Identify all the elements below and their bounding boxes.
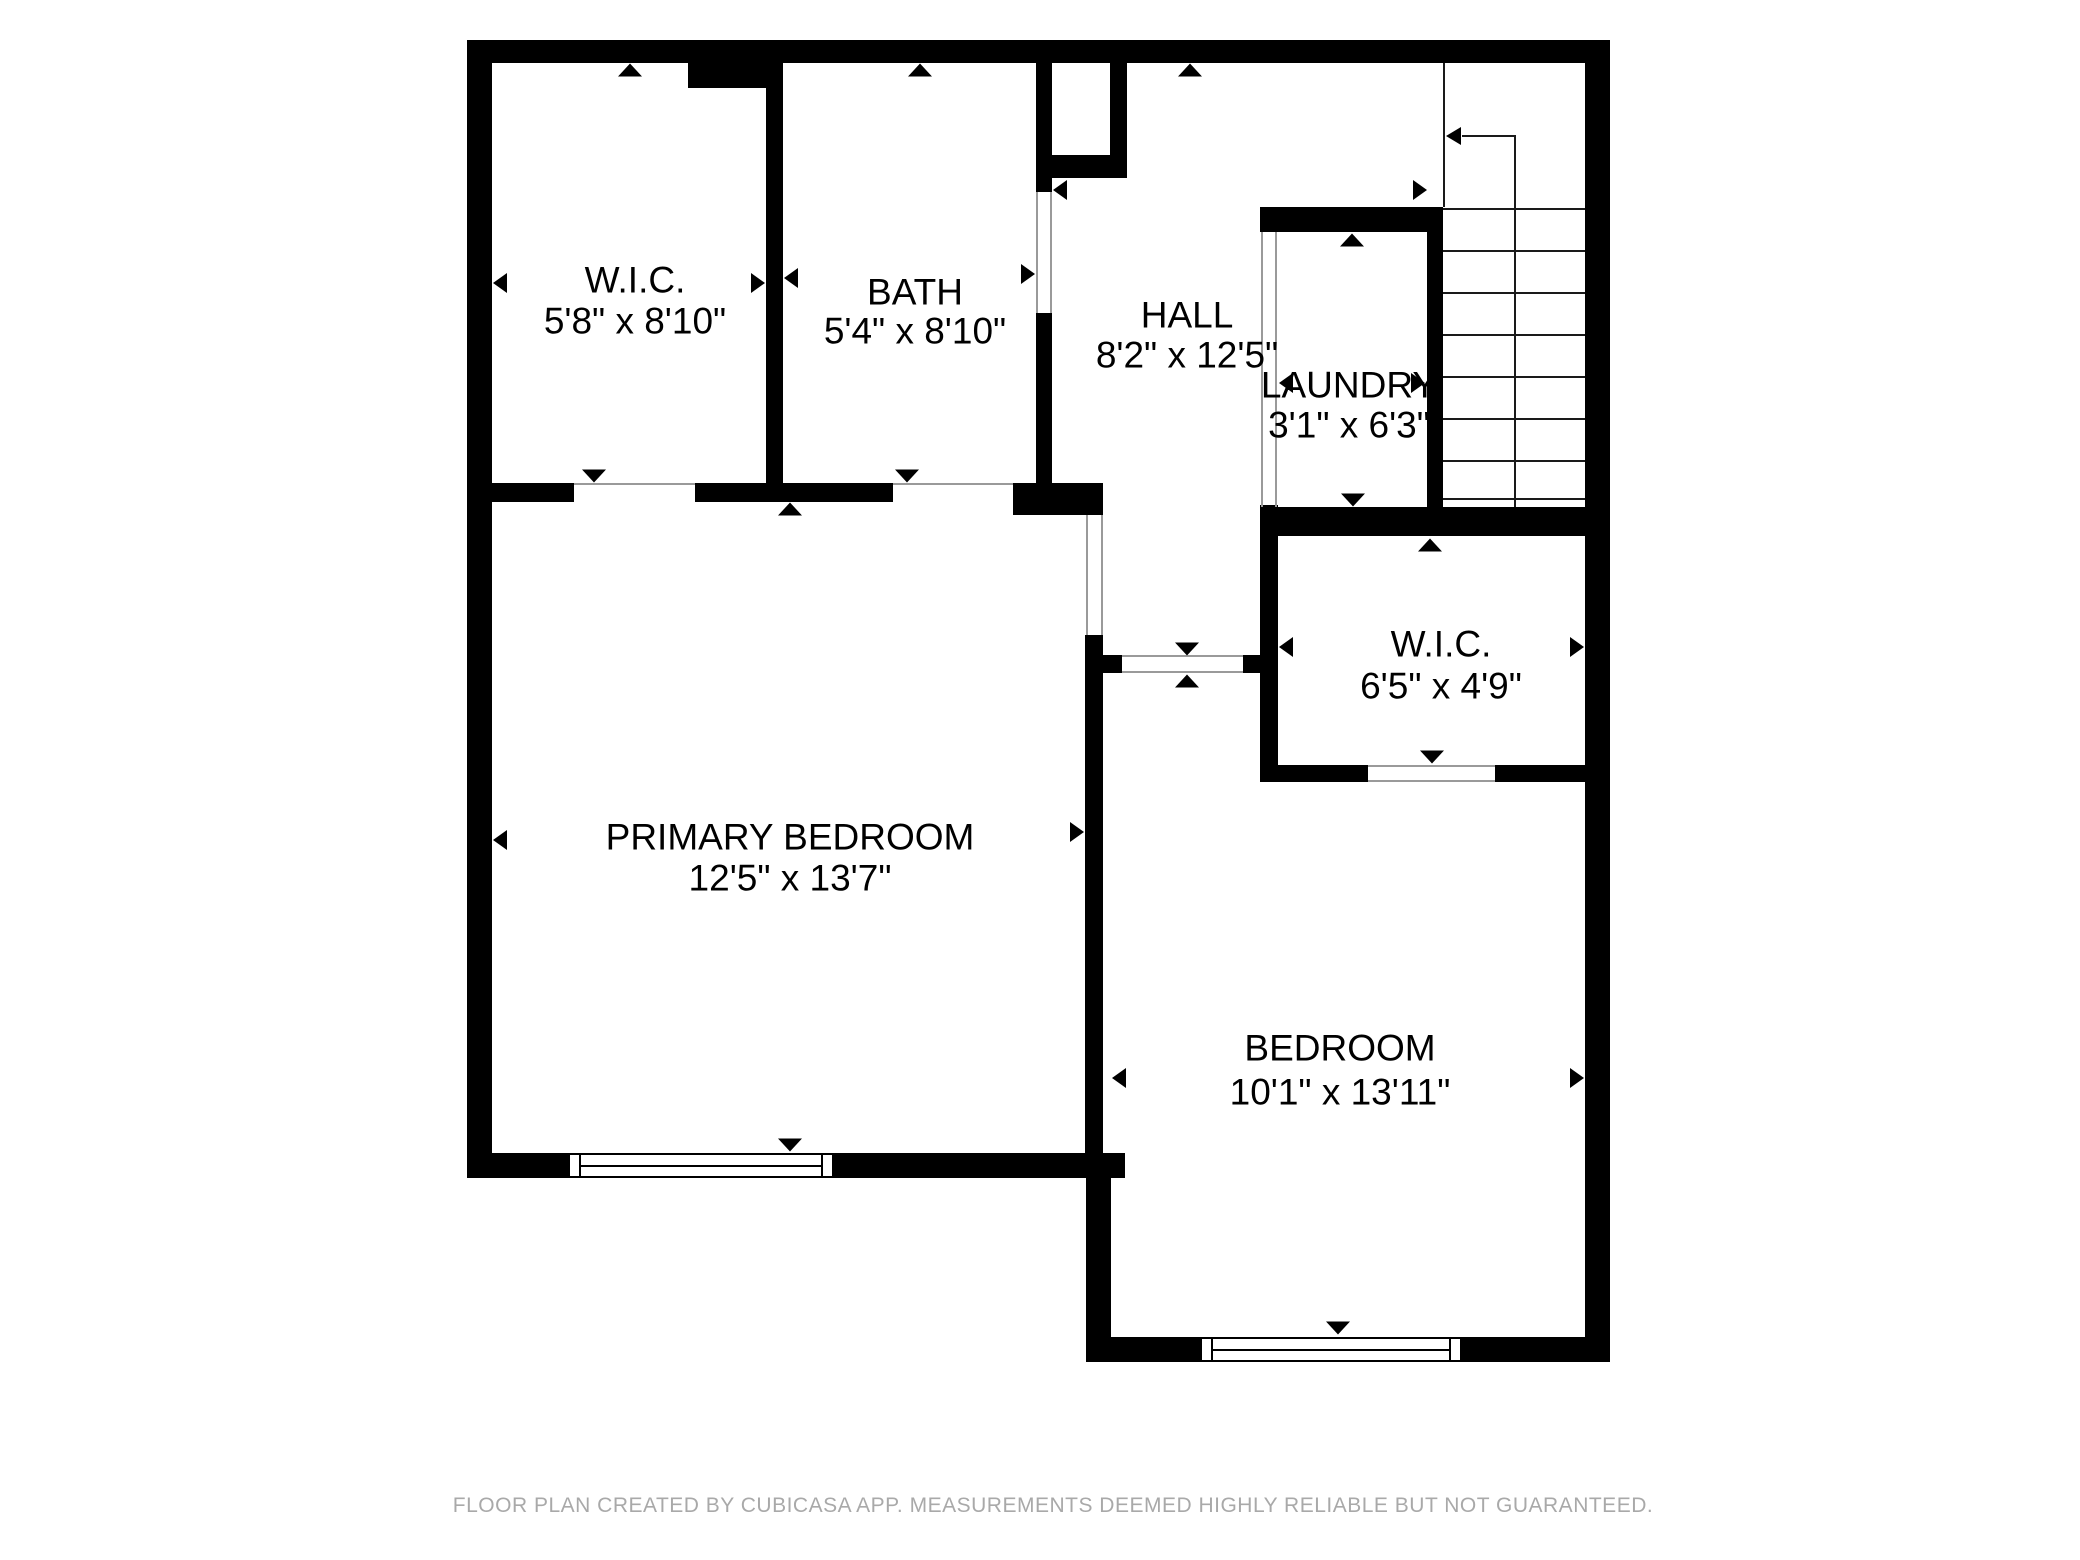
dimension-arrow-up-hall xyxy=(1178,64,1202,77)
dimension-arrow-left-wic-upper xyxy=(493,273,507,293)
dimension-arrow-down-wic-upper xyxy=(582,470,606,483)
room-dimensions-laundry: 3'1" x 6'3" xyxy=(1268,407,1430,444)
dimension-arrow-left-wic-lower xyxy=(1279,637,1293,657)
wall-wic-bottom xyxy=(492,483,574,502)
wall-primary-bottom-right xyxy=(834,1153,1125,1178)
wall-primary-bedroom-divider xyxy=(1085,635,1103,1178)
wall-wic-bath-divider xyxy=(766,63,783,483)
dimension-arrow-down-wic-lower xyxy=(1420,751,1444,764)
dimension-arrow-up-bedroom xyxy=(1175,675,1199,688)
opening-line-wic-door xyxy=(574,483,695,485)
wall-bath-bottom-corner xyxy=(1013,483,1103,515)
wall-niche-bottom xyxy=(1050,155,1127,178)
wall-stairs-left xyxy=(1427,207,1443,507)
wall-niche-right xyxy=(1110,63,1127,155)
dimension-arrow-down-bedroom xyxy=(1326,1322,1350,1335)
opening-line-bath-primary-door xyxy=(893,483,1013,485)
room-name-primary-bedroom: PRIMARY BEDROOM xyxy=(606,819,975,856)
dimension-arrow-left-laundry xyxy=(1279,373,1293,393)
wall-bedroom-door-stub-right xyxy=(1243,655,1260,673)
dimension-arrow-up-bath xyxy=(908,64,932,77)
room-dimensions-bedroom: 10'1" x 13'11" xyxy=(1230,1074,1451,1111)
dimension-arrow-right-hall xyxy=(1413,180,1427,200)
dimension-arrow-right-laundry xyxy=(1411,373,1425,393)
window-glass-line xyxy=(1213,1349,1449,1351)
dimension-arrow-up-wic-upper xyxy=(618,64,642,77)
room-dimensions-wic-lower: 6'5" x 4'9" xyxy=(1360,668,1522,705)
stair-direction-arrow-icon xyxy=(1446,127,1461,145)
wall-exterior-top xyxy=(467,40,1610,63)
wall-bedroom-bottom-right xyxy=(1462,1337,1610,1362)
room-dimensions-bath: 5'4" x 8'10" xyxy=(824,313,1006,350)
dimension-arrow-left-bedroom xyxy=(1112,1068,1126,1088)
wall-exterior-right xyxy=(1585,40,1610,1362)
wall-wic-lower-bottom-right xyxy=(1495,765,1585,782)
window-glass-line xyxy=(581,1165,821,1167)
dimension-arrow-up-wic-lower xyxy=(1418,539,1442,552)
opening-line-primary-hall-door-left xyxy=(1086,515,1088,635)
stair-left-boundary xyxy=(1443,63,1445,207)
dimension-arrow-down-bath xyxy=(895,470,919,483)
wall-bedroom-door-stub-left xyxy=(1103,655,1122,673)
wall-bath-right-lower xyxy=(1036,313,1052,483)
window-jamb xyxy=(821,1155,823,1176)
window-primary-bedroom xyxy=(568,1153,834,1178)
dimension-arrow-up-laundry xyxy=(1340,234,1364,247)
footer-disclaimer: FLOOR PLAN CREATED BY CUBICASA APP. MEAS… xyxy=(453,1494,1653,1518)
wall-wic-lower-left xyxy=(1260,505,1278,782)
wall-exterior-left xyxy=(467,40,492,1178)
room-dimensions-hall: 8'2" x 12'5" xyxy=(1096,337,1278,374)
dimension-arrow-right-bath xyxy=(1021,264,1035,284)
wall-primary-bottom-left xyxy=(467,1153,568,1178)
room-dimensions-primary-bedroom: 12'5" x 13'7" xyxy=(689,860,892,897)
floor-plan: W.I.C.5'8" x 8'10"BATH5'4" x 8'10"HALL8'… xyxy=(0,0,2080,1560)
dimension-arrow-down-hall xyxy=(1175,643,1199,656)
dimension-arrow-right-bedroom xyxy=(1570,1068,1584,1088)
stair-mid-line xyxy=(1514,136,1516,507)
room-name-bedroom: BEDROOM xyxy=(1244,1030,1435,1067)
opening-line-bedroom-door-bottom xyxy=(1122,671,1243,673)
dimension-arrow-down-laundry xyxy=(1341,494,1365,507)
wall-laundry-top xyxy=(1260,207,1443,232)
room-name-bath: BATH xyxy=(867,274,963,311)
opening-line-bath-hall-door-left xyxy=(1036,192,1038,313)
wall-bath-bottom xyxy=(695,483,893,502)
wall-laundry-bottom-wic-top xyxy=(1260,507,1585,536)
opening-line-wic-lower-door-top xyxy=(1368,765,1495,767)
wall-bedroom-lower-left xyxy=(1086,1178,1111,1362)
window-jamb xyxy=(1449,1339,1451,1360)
wall-bedroom-bottom-left xyxy=(1086,1337,1200,1362)
dimension-arrow-down-primary-bedroom xyxy=(778,1139,802,1152)
stair-direction-line xyxy=(1462,135,1516,137)
room-name-hall: HALL xyxy=(1141,297,1234,334)
dimension-arrow-right-wic-lower xyxy=(1570,637,1584,657)
wall-wic-lower-bottom-left xyxy=(1260,765,1368,782)
dimension-arrow-right-wic-upper xyxy=(751,273,765,293)
window-bedroom xyxy=(1200,1337,1462,1362)
dimension-arrow-right-primary-bedroom xyxy=(1070,822,1084,842)
dimension-arrow-left-hall xyxy=(1053,180,1067,200)
opening-line-bath-hall-door-right xyxy=(1050,192,1052,313)
opening-line-wic-lower-door-bottom xyxy=(1368,780,1495,782)
room-dimensions-wic-upper: 5'8" x 8'10" xyxy=(544,303,726,340)
opening-line-primary-hall-door-right xyxy=(1101,515,1103,635)
room-name-wic-lower: W.I.C. xyxy=(1391,626,1492,663)
dimension-arrow-up-primary-bedroom xyxy=(778,503,802,516)
room-name-wic-upper: W.I.C. xyxy=(585,262,686,299)
dimension-arrow-left-bath xyxy=(784,268,798,288)
dimension-arrow-left-primary-bedroom xyxy=(493,830,507,850)
